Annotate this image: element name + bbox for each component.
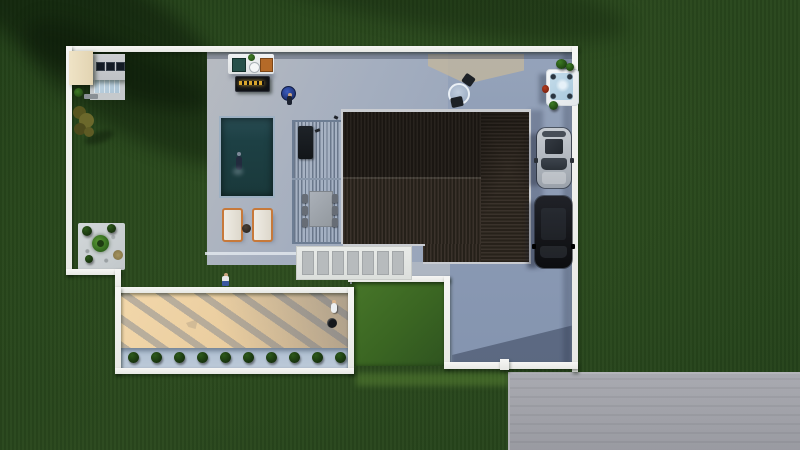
person-lawn-legs — [222, 281, 229, 286]
sun-lounger — [222, 208, 243, 242]
shed-skylight — [116, 62, 125, 71]
outdoor-grill — [298, 126, 313, 159]
dining-chair — [302, 206, 308, 215]
roof-ridge-shading — [343, 112, 481, 244]
sunlit-grass-strip — [356, 373, 508, 386]
tub-bush — [549, 101, 558, 110]
stepping-stone — [302, 251, 314, 275]
wall-inner-lawn-right — [444, 276, 450, 368]
gate-post — [500, 359, 509, 370]
garden-bush — [107, 224, 116, 233]
dining-chair — [302, 194, 308, 203]
roof-eave-ext — [423, 262, 529, 264]
wall-top — [66, 46, 578, 52]
suv-mirror — [571, 244, 575, 249]
suv-windshield — [540, 246, 567, 258]
olive-tree — [84, 127, 94, 137]
wall-bottom — [444, 362, 578, 369]
car-mirror — [534, 158, 538, 163]
car-rear-window — [542, 131, 566, 137]
car-sunroof — [545, 139, 563, 154]
orange-cabinet — [260, 58, 273, 72]
planter-bush — [243, 352, 254, 363]
hot-tub-water — [550, 73, 573, 100]
dining-table — [309, 191, 333, 227]
patio-curb — [205, 252, 300, 255]
dining-chair — [302, 218, 308, 227]
garden-bush — [82, 226, 92, 236]
shed-awning — [69, 51, 93, 85]
planter-bush — [289, 352, 300, 363]
car-windshield — [541, 158, 567, 170]
aerial-render-scene: Top-down 3D architectural rendering of a… — [0, 0, 800, 450]
car-hood — [542, 172, 566, 184]
stepping-stone — [347, 251, 359, 275]
side-table — [242, 224, 251, 233]
planter-bush — [174, 352, 185, 363]
stepping-stone — [377, 251, 389, 275]
swimming-pool — [219, 116, 275, 198]
shed-skylight — [96, 62, 105, 71]
sun-lounger — [252, 208, 273, 242]
palm-core — [97, 240, 104, 247]
shed-palm — [74, 88, 83, 97]
stepping-stone — [317, 251, 329, 275]
player-dark — [327, 318, 337, 328]
stepping-stone — [362, 251, 374, 275]
dining-chair — [332, 218, 338, 227]
sink-module — [249, 62, 260, 73]
grill-module — [232, 58, 246, 72]
car-mirror — [570, 158, 574, 163]
planter-bush — [266, 352, 277, 363]
tub-bush — [566, 63, 574, 71]
dining-chair — [332, 194, 338, 203]
roof-wing-hip-shading — [481, 112, 529, 264]
wall-sand-bottom — [115, 368, 354, 374]
wall-sand-left — [115, 287, 121, 374]
dining-chair — [332, 206, 338, 215]
planter-bush — [197, 352, 208, 363]
garden-bush — [85, 255, 93, 263]
planter-bush — [128, 352, 139, 363]
pool-splash — [233, 168, 243, 175]
planter-bush — [335, 352, 346, 363]
planter-bush — [220, 352, 231, 363]
shed-glass-canopy — [94, 78, 120, 93]
player-white — [331, 303, 337, 313]
stepping-stone — [392, 251, 404, 275]
bar-sign-gold — [239, 81, 264, 85]
street — [508, 372, 800, 450]
suv-roof-sheen — [541, 208, 566, 240]
inner-lawn — [352, 282, 444, 366]
wall-sand-right — [348, 287, 354, 374]
person-patio — [287, 96, 292, 105]
dry-grass-plant — [113, 250, 123, 260]
suv-mirror — [532, 244, 536, 249]
pergola-beam — [292, 178, 343, 180]
planter-bush — [312, 352, 323, 363]
shed-skylight — [106, 62, 115, 71]
planter-bush — [151, 352, 162, 363]
stepping-stone — [332, 251, 344, 275]
kitchen-plant — [248, 54, 255, 61]
wall-sand-top — [115, 287, 354, 293]
red-plant — [542, 85, 549, 93]
wall-garden-step — [66, 269, 121, 275]
shed-bench — [84, 94, 98, 99]
